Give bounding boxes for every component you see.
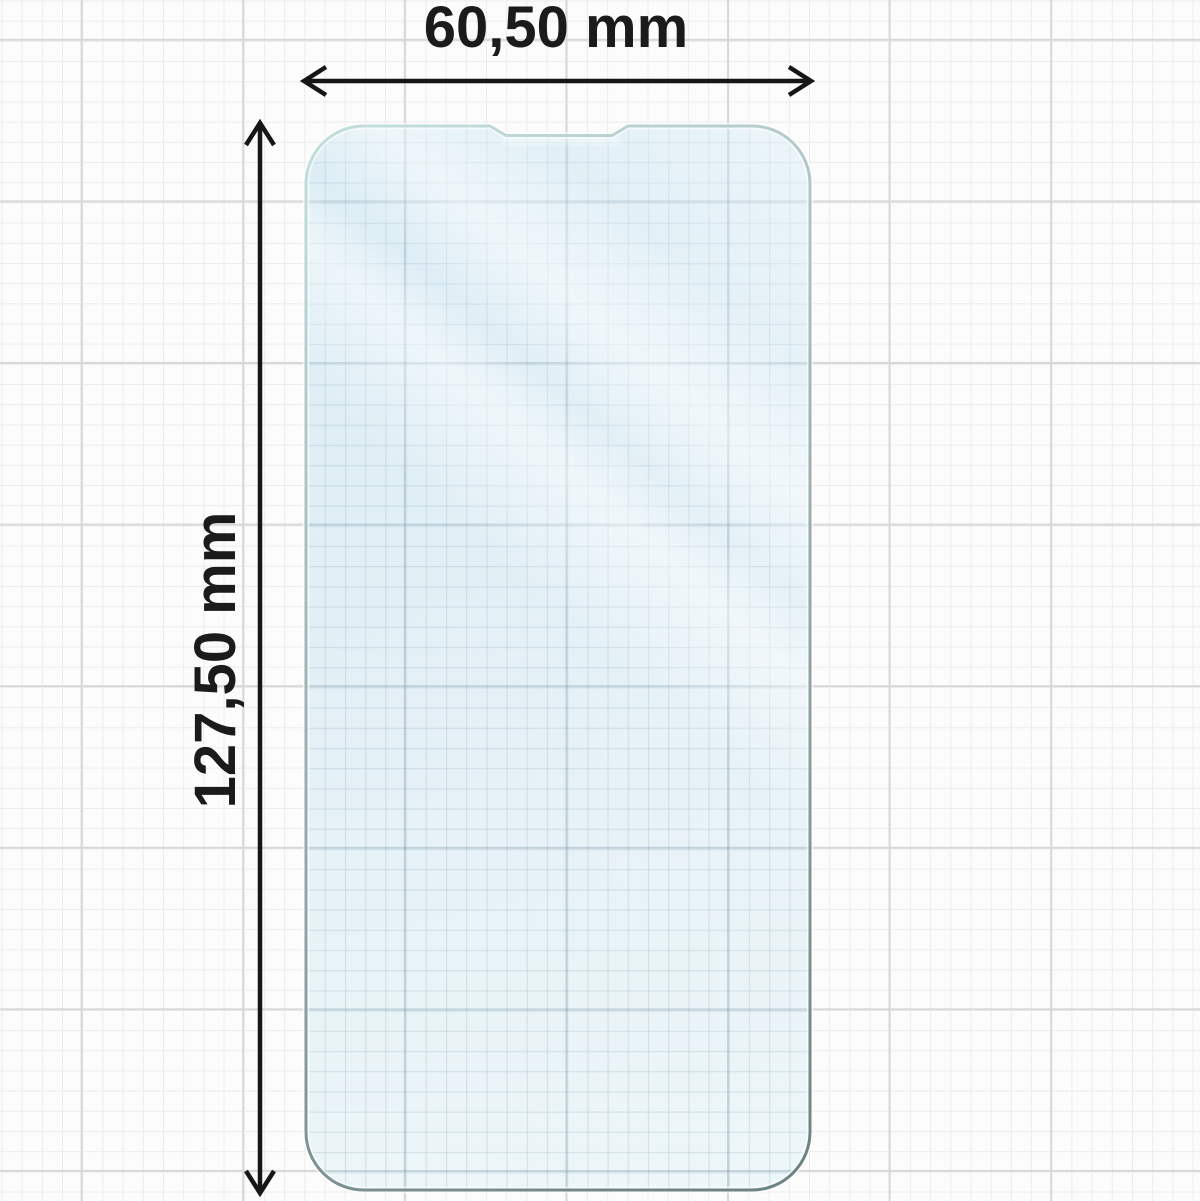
width-arrow-icon xyxy=(304,67,811,95)
height-dimension-label: 127,50 mm xyxy=(181,300,251,1020)
diagram-graphics xyxy=(0,0,1200,1201)
screen-protector-inner-grid xyxy=(300,120,816,1196)
dimension-diagram: 60,50 mm 127,50 mm xyxy=(0,0,1200,1201)
screen-protector-outline xyxy=(306,126,810,1190)
screen-protector-outline-highlight xyxy=(306,126,810,1190)
screen-protector-fill xyxy=(306,126,810,1190)
glare-sheen xyxy=(300,120,816,1196)
width-dimension-label: 60,50 mm xyxy=(196,0,916,63)
notch-highlight xyxy=(500,139,620,144)
screen-protector xyxy=(300,120,816,1196)
